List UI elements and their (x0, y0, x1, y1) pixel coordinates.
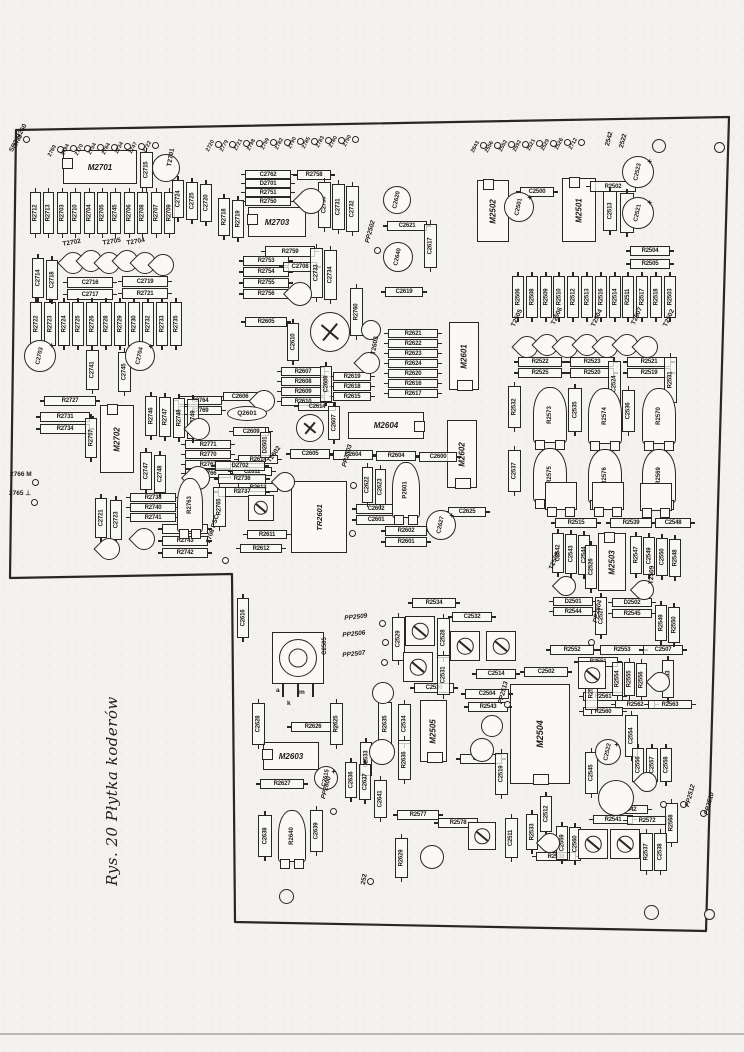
capacitor-C2519: C2519 (495, 753, 508, 795)
trimmer-301 (578, 661, 606, 689)
capacitor-C2724: C2724 (172, 180, 184, 218)
transistor-TR2601: TR2601 (291, 481, 347, 553)
capacitor-C2513: C2513 (603, 191, 617, 231)
solder-pad-347 (379, 620, 386, 627)
capacitor-C2704: C2704+ (125, 341, 155, 371)
trimmer-302 (578, 829, 608, 859)
capacitor-C2725: C2725 (186, 182, 198, 220)
resistor-R2728: R2728 (100, 302, 112, 346)
capacitor-C2638: C2638 (258, 815, 272, 857)
resistor-R2515: R2515 (555, 518, 597, 528)
resistor-R2622: R2622 (388, 339, 438, 348)
trimmer-306 (296, 414, 324, 442)
capacitor-C2610: C2610 (287, 323, 299, 361)
capacitor-C2531: C2531 (437, 655, 450, 695)
resistor-R2504: R2504 (630, 246, 670, 256)
resistor-R2563: R2563 (648, 700, 692, 709)
capacitor-C2628: C2628 (252, 703, 265, 745)
resistor-R2719: R2719 (232, 200, 244, 238)
capacitor-C2747: C2747 (140, 452, 152, 490)
solder-pad-348 (382, 639, 389, 646)
resistor-R2713: R2713 (43, 192, 54, 234)
capacitor-C2507: C2507 (643, 645, 683, 655)
resistor-R2550: R2550 (668, 607, 680, 643)
capacitor-C2718: C2718 (46, 260, 58, 300)
resistor-R2555: R2555 (624, 662, 635, 696)
resistor-R2636: R2636 (398, 740, 411, 780)
capacitor-C2731: C2731 (332, 184, 345, 230)
capacitor-242 (152, 154, 180, 182)
pot-P2601: P2601 (392, 462, 420, 518)
capacitor-C2627: C2627+ (426, 510, 456, 540)
capacitor-C2714: C2714 (32, 258, 44, 298)
label-a: a (276, 687, 280, 694)
transistor-package-309 (640, 483, 672, 511)
figure-caption: Rys. 20 Płytka koderów (103, 681, 121, 901)
resistor-R2731: R2731 (40, 412, 90, 422)
resistor-R2755: R2755 (243, 278, 289, 288)
capacitor-C2639: C2639 (310, 810, 323, 852)
capacitor-C2715: C2715 (140, 152, 153, 188)
resistor-R2710: R2710 (70, 192, 81, 234)
resistor-R2629: R2629 (395, 838, 408, 878)
ic-M2504: M2504 (510, 684, 570, 784)
capacitor-C2538: C2538 (654, 833, 667, 871)
solder-pad-359 (367, 878, 374, 885)
resistor-R2611: R2611 (247, 530, 287, 539)
capacitor-C2636: C2636 (345, 762, 357, 798)
resistor-R2708: R2708 (137, 192, 148, 234)
resistor-R2707: R2707 (151, 192, 162, 234)
capacitor-C2600: C2600 (419, 452, 457, 462)
ic-M2702: M2702 (100, 405, 134, 473)
ic-M2703: M2703 (248, 207, 306, 237)
capacitor-C2558: C2558 (660, 748, 672, 782)
capacitor-C2550: C2550 (656, 538, 668, 576)
crystal-Q2601: Q2601 (227, 406, 267, 421)
resistor-R2573: R2573 (533, 387, 567, 443)
resistor-R2518: R2518 (650, 276, 662, 318)
capacitor-C2536: C2536 (622, 390, 635, 432)
solder-pad-350 (350, 482, 357, 489)
resistor-R2623: R2623 (388, 349, 438, 358)
solder-pad-349 (381, 659, 388, 666)
capacitor-C2762: C2762 (245, 170, 291, 179)
resistor-R2740: R2740 (130, 503, 176, 512)
resistor-R2627: R2627 (260, 779, 304, 789)
resistor-R2544: R2544 (553, 607, 593, 616)
capacitor-C2548: C2548 (655, 518, 691, 528)
resistor-R2534: R2534 (412, 598, 456, 608)
mount-hole-312 (652, 139, 666, 153)
trimmer-300 (486, 631, 516, 661)
trimmer-297 (405, 616, 435, 646)
solder-pad-2762: 2762 (23, 136, 30, 143)
diode-D2501: D2501 (553, 597, 593, 606)
capacitor-C2703: C2703+ (24, 340, 56, 372)
resistor-R2704: R2704 (84, 192, 95, 234)
solder-pad-345 (32, 479, 39, 486)
capacitor-C2512: C2512 (540, 796, 552, 832)
resistor-R2733: R2733 (156, 302, 168, 346)
diode-D2701: D2701 (245, 179, 291, 188)
resistor-R2624: R2624 (388, 359, 438, 368)
capacitor-247 (369, 739, 395, 765)
resistor-R2729: R2729 (114, 302, 126, 346)
capacitor-C2748: C2748 (154, 455, 166, 493)
capacitor-249 (470, 738, 494, 762)
ic-M2505: M2505 (420, 700, 447, 762)
capacitor-C2607: C2607 (328, 406, 340, 440)
capacitor-C2619: C2619 (385, 287, 423, 297)
resistor-R2718: R2718 (218, 198, 230, 236)
resistor-R2735: R2735 (170, 302, 182, 346)
solder-pad-2722: 2722 (152, 142, 159, 149)
resistor-R2742: R2742 (162, 548, 208, 558)
capacitor-C2601: C2601 (356, 515, 396, 525)
capacitor-C2501: C2501+ (504, 192, 534, 222)
resistor-R2505: R2505 (630, 259, 670, 269)
trimmer-303 (610, 829, 640, 859)
ic-M2503: M2503 (598, 533, 626, 591)
resistor-R2620: R2620 (388, 369, 438, 378)
resistor-R2757: R2757 (85, 418, 97, 458)
resistor-R2604: R2604 (376, 451, 416, 461)
capacitor-C2620: C2620 (383, 186, 411, 214)
capacitor-C2734: C2734 (324, 250, 337, 300)
capacitor-C2623: C2623 (375, 469, 386, 505)
capacitor-C2502: C2502 (524, 667, 568, 677)
resistor-R2748: R2748 (173, 398, 185, 438)
mount-hole-315 (704, 909, 715, 920)
resistor-R2750: R2750 (245, 197, 291, 206)
resistor-R2552: R2552 (550, 645, 594, 655)
resistor-R2741: R2741 (130, 513, 176, 522)
capacitor-246 (372, 682, 394, 704)
resistor-R2706: R2706 (124, 192, 135, 234)
resistor-R2513: R2513 (581, 276, 593, 318)
capacitor-C2617: C2617 (424, 224, 437, 268)
ic-M2604: M2604 (348, 412, 424, 439)
capacitor-C2719: C2719 (122, 276, 168, 287)
solder-pad-2750: 2750 (352, 136, 359, 143)
resistor-R2509: R2509 (540, 276, 552, 318)
capacitor-C2741: C2741 (86, 350, 99, 390)
resistor-R2763: R2763 (177, 478, 203, 532)
resistor-R2615: R2615 (333, 392, 371, 401)
capacitor-C2532: C2532 (452, 612, 492, 622)
resistor-R2625: R2625 (330, 703, 343, 745)
resistor-R2545: R2545 (612, 609, 652, 618)
solder-pad-354 (660, 801, 667, 808)
capacitor-C2602: C2602 (356, 504, 396, 514)
trimmer-299 (450, 631, 480, 661)
solder-pad-360 (222, 557, 229, 564)
capacitor-C2637: C2637 (359, 764, 371, 800)
resistor-R2626: R2626 (291, 722, 335, 732)
resistor-R2732: R2732 (142, 302, 154, 346)
resistor-R2602: R2602 (385, 526, 427, 536)
capacitor-C2511: C2511 (505, 818, 518, 858)
mount-hole-316 (279, 889, 294, 904)
resistor-R2539: R2539 (610, 518, 652, 528)
resistor-R2621: R2621 (388, 329, 438, 338)
resistor-R2745: R2745 (110, 192, 121, 234)
resistor-R2532: R2532 (508, 386, 521, 428)
trimmer-305 (310, 312, 350, 352)
capacitor-C2732: C2732 (346, 186, 359, 232)
capacitor-C2514: C2514 (476, 669, 516, 679)
capacitor-C2543: C2543 (565, 534, 577, 574)
resistor-R2725: R2725 (72, 302, 84, 346)
solder-pad-351 (588, 639, 595, 646)
resistor-R2612: R2612 (240, 544, 282, 553)
solder-pad-352 (504, 701, 511, 708)
resistor-R2618: R2618 (333, 382, 371, 391)
label-k: k (287, 700, 291, 707)
resistor-R2727: R2727 (44, 396, 96, 406)
capacitor-248 (481, 715, 503, 737)
solder-pad-357 (374, 247, 381, 254)
trimmer-298 (403, 652, 433, 682)
capacitor-C2521: C2521+ (622, 197, 654, 229)
capacitor-C2720: C2720 (200, 184, 212, 222)
capacitor-C2640: C2640 (383, 242, 413, 272)
transistor-package-308 (592, 482, 624, 510)
resistor-R2605: R2605 (245, 317, 287, 327)
resistor-R2640: R2640 (278, 810, 306, 862)
resistor-R2617: R2617 (388, 389, 438, 398)
resistor-R2734: R2734 (40, 424, 90, 434)
trimmer-304 (468, 822, 496, 850)
mount-hole-313 (714, 142, 725, 153)
label-m: m (299, 689, 305, 696)
capacitor-C2523: C2523+ (622, 156, 654, 188)
resistor-R2616: R2616 (388, 379, 438, 388)
solder-pad-358 (349, 530, 356, 537)
capacitor-C2526: C2526 (585, 545, 597, 589)
capacitor-C2622: C2622 (362, 467, 373, 503)
capacitor-C2608: C2608 (320, 366, 332, 402)
resistor-R2508: R2508 (526, 276, 538, 318)
solder-pad-346 (31, 499, 38, 506)
resistor-R2572: R2572 (627, 816, 667, 825)
resistor-R2549: R2549 (655, 605, 667, 641)
resistor-R2512: R2512 (567, 276, 579, 318)
solder-pad-356 (330, 808, 337, 815)
label-2766-m: 2766 M (10, 471, 32, 478)
capacitor-C2535: C2535 (568, 388, 582, 432)
resistor-R2553: R2553 (600, 645, 644, 655)
resistor-R2608: R2608 (281, 377, 325, 386)
capacitor-C2621: C2621 (387, 221, 427, 231)
resistor-R2570: R2570 (642, 388, 676, 444)
mount-hole-314 (644, 905, 659, 920)
resistor-R2533: R2533 (526, 814, 538, 850)
resistor-R2736: R2736 (218, 474, 266, 484)
pcb-layout-diagram: M2701M2703M2604M2603M2702M2502M2501M2601… (0, 0, 744, 1052)
capacitor-C2716: C2716 (67, 277, 113, 288)
resistor-R2758: R2758 (297, 170, 331, 180)
label-2765-: 2765 ⊥ (9, 489, 31, 497)
resistor-R2601: R2601 (385, 537, 427, 547)
resistor-R2547: R2547 (630, 536, 642, 574)
solder-pad-2712: 2712 (578, 139, 585, 146)
capacitor-251 (420, 845, 444, 869)
scan-page-edge (0, 1033, 744, 1035)
resistor-R2577: R2577 (397, 810, 439, 820)
capacitor-C2537: C2537 (508, 450, 521, 492)
resistor-R2525: R2525 (518, 368, 562, 378)
resistor-R2609: R2609 (281, 387, 325, 396)
label-t2509: T2509 (648, 566, 656, 585)
capacitor-C2522: C2522+ (595, 739, 621, 765)
capacitor-C2616: C2616 (237, 598, 249, 638)
transistor-package-307 (545, 482, 577, 510)
resistor-R2723: R2723 (44, 302, 56, 346)
resistor-R2522: R2522 (518, 357, 562, 367)
diode-D2702: D2702 (215, 461, 265, 471)
resistor-R2548: R2548 (669, 539, 681, 577)
resistor-R2751: R2751 (245, 188, 291, 197)
resistor-R2511: R2511 (622, 276, 634, 318)
capacitor-C2723: C2723 (110, 500, 122, 540)
resistor-R2574: R2574 (588, 388, 622, 444)
resistor-R2607: R2607 (281, 367, 325, 376)
ic-M2603: M2603 (263, 742, 319, 770)
resistor-R2712: R2712 (30, 192, 41, 234)
resistor-R2537: R2537 (640, 833, 653, 871)
capacitor-C2641: C2641 (374, 780, 387, 818)
resistor-R2554: R2554 (612, 662, 623, 696)
resistor-R2746: R2746 (145, 396, 157, 436)
resistor-R2556: R2556 (636, 663, 647, 697)
resistor-R2726: R2726 (86, 302, 98, 346)
resistor-R2738: R2738 (130, 493, 176, 502)
resistor-R2724: R2724 (58, 302, 70, 346)
capacitor-250 (598, 780, 634, 816)
ic-M2701: M2701 (63, 150, 137, 184)
ic-M2601: M2601 (449, 322, 479, 390)
capacitor-C2605: C2605 (290, 449, 330, 459)
resistor-R2770: R2770 (185, 450, 231, 459)
trimmer-296 (248, 495, 274, 521)
resistor-R2747: R2747 (159, 397, 171, 437)
resistor-R2703: R2703 (57, 192, 68, 234)
resistor-R2705: R2705 (97, 192, 108, 234)
resistor-R2514: R2514 (609, 276, 621, 318)
capacitor-C2505: C2505 (272, 632, 324, 684)
capacitor-C2604: C2604 (333, 450, 373, 460)
capacitor-C2721: C2721 (95, 498, 107, 538)
